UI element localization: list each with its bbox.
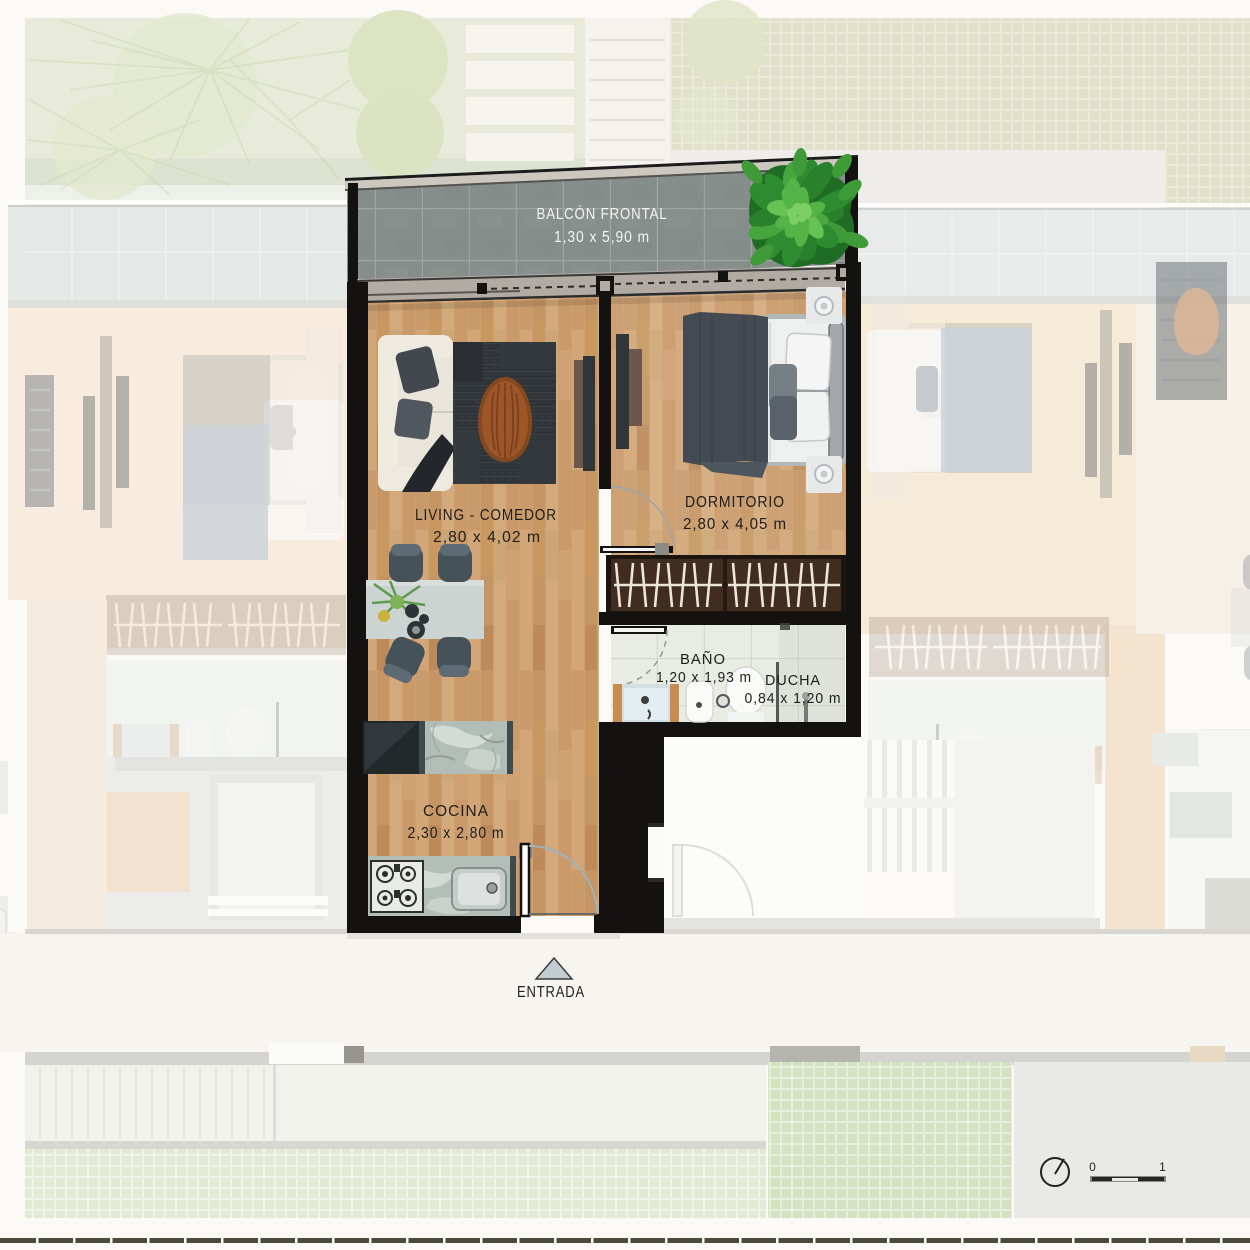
svg-text:2,30 x 2,80 m: 2,30 x 2,80 m bbox=[408, 825, 505, 842]
svg-text:BAÑO: BAÑO bbox=[680, 651, 726, 668]
svg-text:0: 0 bbox=[1089, 1160, 1097, 1174]
svg-text:ENTRADA: ENTRADA bbox=[517, 984, 585, 1001]
svg-text:1,30 x 5,90 m: 1,30 x 5,90 m bbox=[554, 229, 650, 246]
svg-text:2,80 x 4,02 m: 2,80 x 4,02 m bbox=[433, 529, 541, 546]
svg-text:DUCHA: DUCHA bbox=[765, 672, 821, 689]
svg-text:2,80 x 4,05 m: 2,80 x 4,05 m bbox=[683, 516, 787, 533]
svg-text:BALCÓN FRONTAL: BALCÓN FRONTAL bbox=[537, 206, 668, 223]
svg-text:0,84 x 1,20 m: 0,84 x 1,20 m bbox=[745, 690, 842, 707]
svg-text:LIVING - COMEDOR: LIVING - COMEDOR bbox=[415, 507, 557, 524]
svg-text:1: 1 bbox=[1159, 1160, 1167, 1174]
svg-text:DORMITORIO: DORMITORIO bbox=[685, 494, 785, 511]
svg-text:COCINA: COCINA bbox=[423, 803, 489, 820]
svg-text:1,20 x 1,93 m: 1,20 x 1,93 m bbox=[656, 669, 752, 686]
